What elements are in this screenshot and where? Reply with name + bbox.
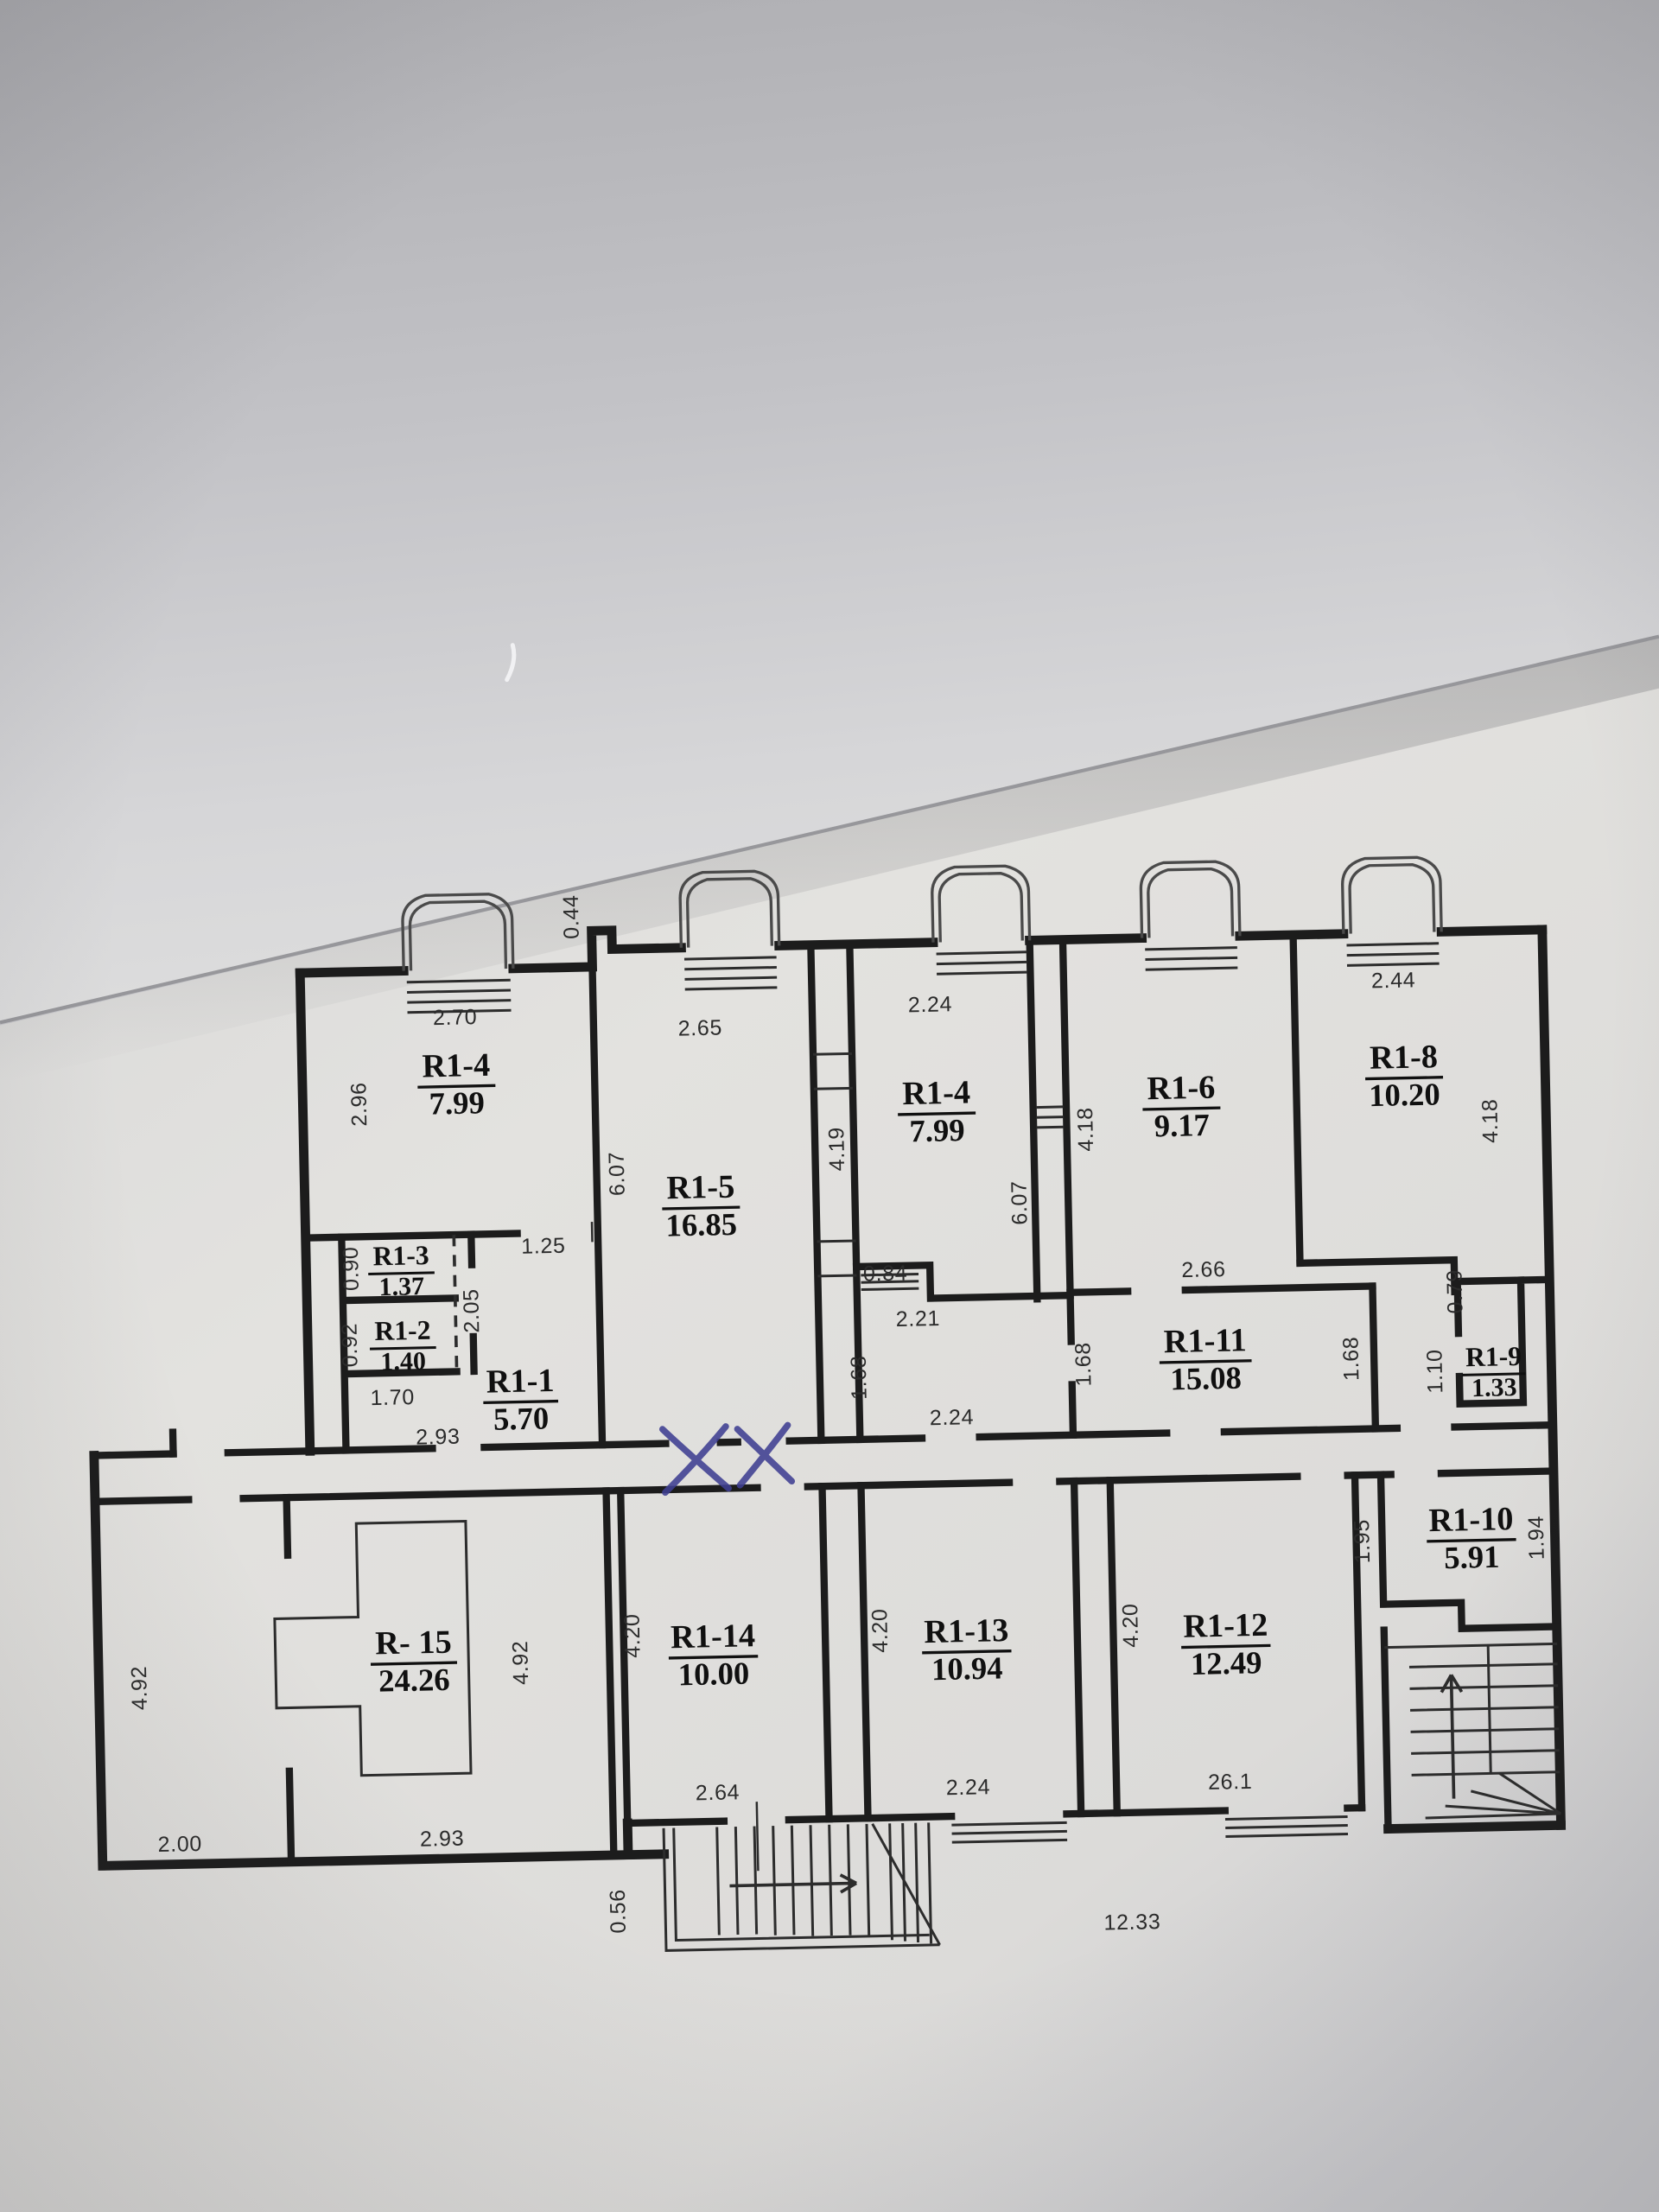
photo-of-floor-plan: R1-47.99 R1-516.85 R1-47.99 R1-69.17 R1-… — [0, 0, 1659, 2212]
floor-plan-sheet: R1-47.99 R1-516.85 R1-47.99 R1-69.17 R1-… — [0, 0, 1659, 2212]
photo-vignette — [0, 0, 1659, 2212]
